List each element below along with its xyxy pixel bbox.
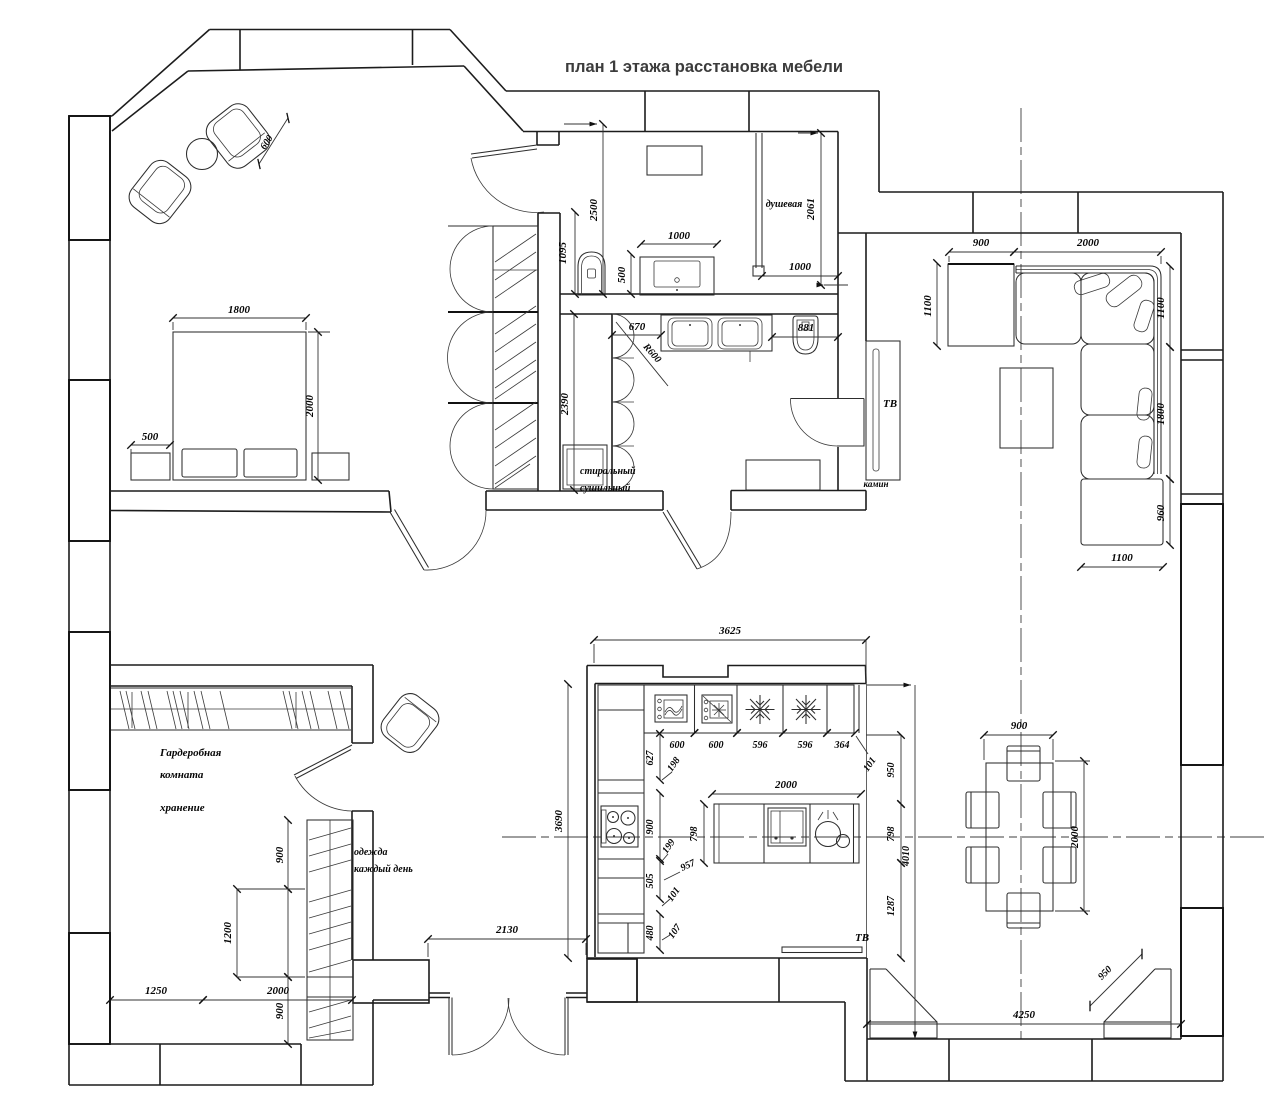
svg-text:2000: 2000: [774, 779, 798, 791]
svg-text:364: 364: [834, 740, 850, 751]
svg-text:600: 600: [670, 740, 685, 751]
svg-text:хранение: хранение: [159, 802, 205, 814]
svg-text:1250: 1250: [145, 985, 168, 997]
svg-text:камин: камин: [863, 479, 888, 489]
svg-text:4010: 4010: [901, 846, 912, 867]
svg-text:2500: 2500: [588, 199, 600, 223]
svg-text:900: 900: [645, 820, 656, 835]
svg-text:960: 960: [1155, 504, 1167, 521]
svg-text:798: 798: [689, 827, 700, 842]
svg-text:600: 600: [709, 740, 724, 751]
svg-text:1100: 1100: [1155, 297, 1167, 319]
svg-text:2390: 2390: [559, 393, 571, 417]
svg-text:3625: 3625: [718, 625, 742, 637]
svg-text:900: 900: [274, 846, 286, 863]
svg-text:1000: 1000: [789, 261, 812, 273]
svg-text:500: 500: [616, 266, 628, 283]
svg-text:627: 627: [645, 750, 656, 766]
svg-text:2061: 2061: [805, 198, 817, 221]
svg-text:каждый день: каждый день: [354, 864, 413, 875]
svg-text:900: 900: [973, 237, 990, 249]
svg-text:596: 596: [798, 740, 813, 751]
svg-text:комната: комната: [160, 769, 204, 781]
svg-text:1095: 1095: [557, 242, 569, 265]
svg-text:1100: 1100: [1111, 552, 1133, 564]
svg-text:1800: 1800: [228, 304, 251, 316]
svg-text:881: 881: [798, 322, 815, 334]
svg-text:798: 798: [886, 827, 897, 842]
svg-text:900: 900: [1011, 720, 1028, 732]
svg-text:505: 505: [645, 874, 656, 889]
svg-text:ТВ: ТВ: [855, 932, 869, 944]
svg-text:900: 900: [274, 1002, 286, 1019]
svg-text:2130: 2130: [495, 924, 519, 936]
svg-text:2000: 2000: [266, 985, 290, 997]
svg-text:480: 480: [645, 926, 656, 942]
svg-text:одежда: одежда: [354, 847, 388, 858]
svg-text:950: 950: [886, 763, 897, 778]
svg-text:Гардеробная: Гардеробная: [159, 747, 222, 759]
svg-text:2000: 2000: [304, 395, 316, 419]
svg-text:сушильный: сушильный: [580, 483, 631, 494]
svg-text:3690: 3690: [553, 810, 565, 834]
svg-text:670: 670: [629, 321, 646, 333]
svg-text:4250: 4250: [1012, 1009, 1036, 1021]
svg-text:стиральный: стиральный: [580, 466, 636, 477]
svg-text:1100: 1100: [922, 295, 934, 317]
svg-text:2000: 2000: [1069, 826, 1081, 850]
svg-text:1000: 1000: [668, 230, 691, 242]
svg-text:2000: 2000: [1076, 237, 1100, 249]
svg-text:1200: 1200: [222, 922, 234, 945]
svg-text:500: 500: [142, 431, 159, 443]
svg-text:596: 596: [753, 740, 768, 751]
svg-text:план 1 этажа расстановка мебел: план 1 этажа расстановка мебели: [565, 58, 843, 76]
svg-text:ТВ: ТВ: [883, 398, 897, 410]
svg-text:1800: 1800: [1155, 403, 1167, 426]
svg-text:1287: 1287: [886, 895, 897, 916]
svg-text:душевая: душевая: [766, 199, 803, 210]
